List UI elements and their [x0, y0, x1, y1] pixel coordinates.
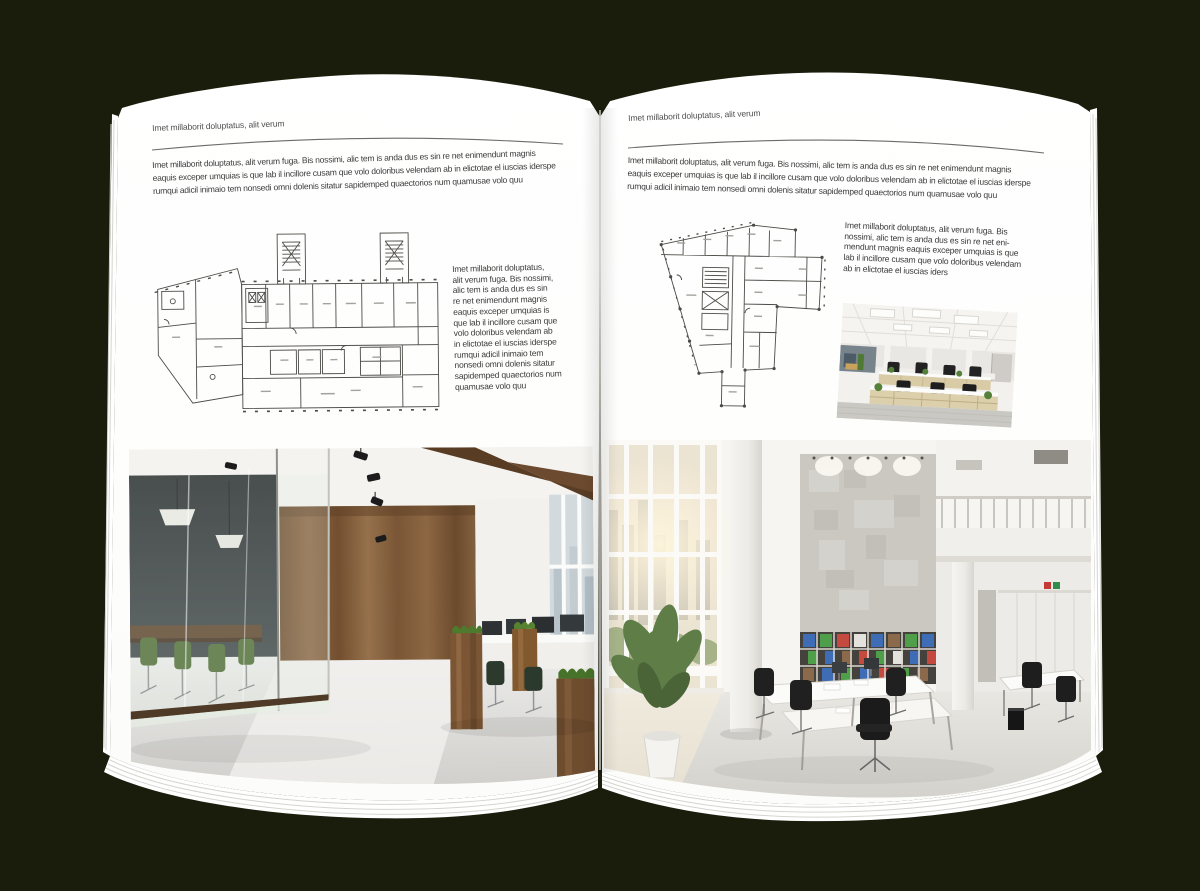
floor-plan-left-drawing: [149, 224, 446, 415]
left-page-caption-column: Imet millaborit doluptatus, alit verum f…: [452, 261, 577, 392]
right-page-caption-column: Imet millaborit doluptatus, alit verum f…: [843, 220, 1060, 282]
floor-plan-right-drawing: [644, 214, 837, 415]
office-photo-small: [837, 303, 1018, 428]
right-header-rule: [626, 128, 1046, 158]
office-photo-right: [604, 440, 1091, 802]
office-photo-left: [129, 446, 595, 794]
magazine-spread-mockup: Imet millaborit doluptatus, alit verum I…: [0, 0, 1200, 891]
